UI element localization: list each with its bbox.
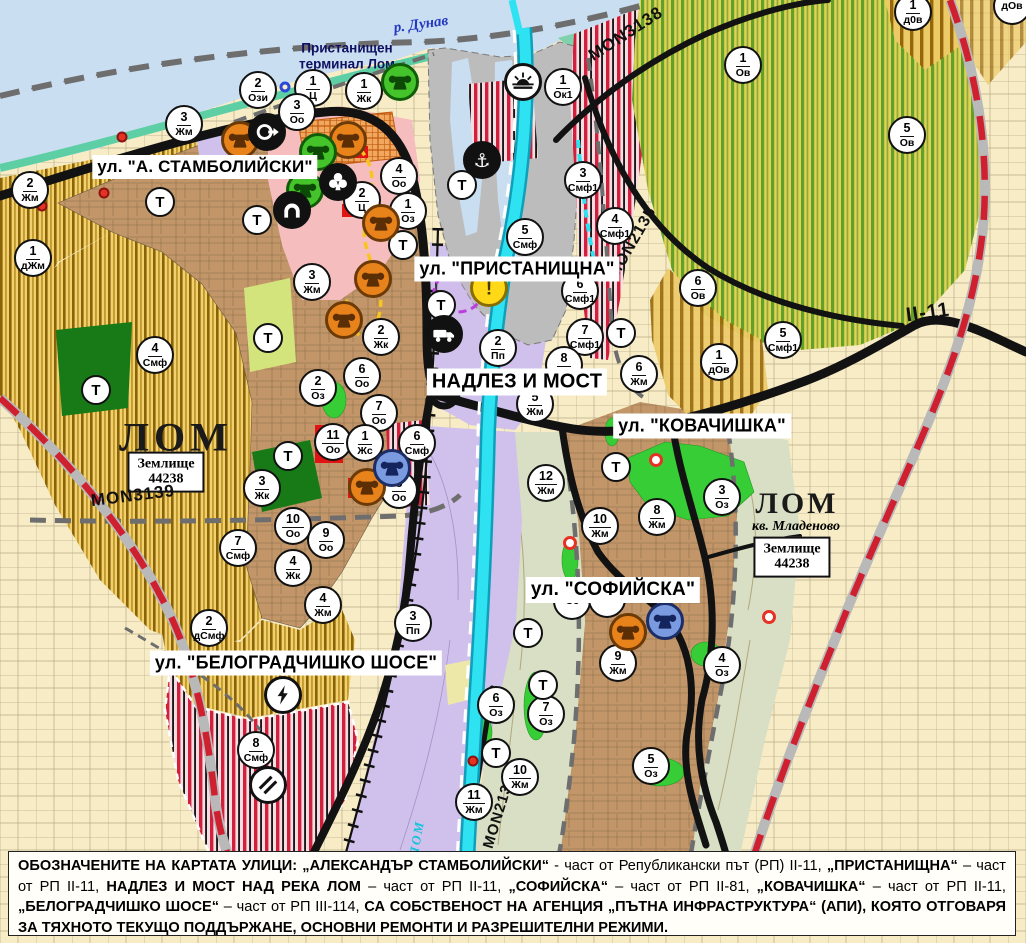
- zone-marker-3-Жм: 3Жм: [293, 263, 331, 301]
- monument-blue-icon: [373, 449, 411, 487]
- pump-station-icon: [248, 113, 286, 151]
- zone-marker-7-Оз: 7Оз: [527, 695, 565, 733]
- monument-green-icon: [381, 63, 419, 101]
- truck-icon: [425, 315, 463, 353]
- tunnel-icon: [273, 191, 311, 229]
- zone-marker-5-Смф: 5Смф: [506, 218, 544, 256]
- zone-marker-1-д0в: 1д0в: [894, 0, 932, 31]
- zone-marker-6-Ов: 6Ов: [679, 269, 717, 307]
- zone-marker-10-Жм: 10Жм: [501, 758, 539, 796]
- river-danube-label: р. Дунав: [393, 13, 450, 37]
- poi-red-dot: [99, 188, 110, 199]
- zone-marker-4-Оо: 4Оо: [380, 157, 418, 195]
- zone-marker-9-Оо: 9Оо: [307, 521, 345, 559]
- zone-marker-4-Жк: 4Жк: [274, 549, 312, 587]
- map-overlay: р. Дунав Пристанищен терминал Лом ЛОМ ЛО…: [0, 0, 1026, 943]
- svg-text:⚓: ⚓: [474, 150, 491, 172]
- zone-marker-4-Смф: 4Смф: [136, 336, 174, 374]
- zone-marker-1-Жк: 1Жк: [345, 72, 383, 110]
- map-caption: ОБОЗНАЧЕНИТЕ НА КАРТАТА УЛИЦИ: „АЛЕКСАНД…: [8, 851, 1016, 936]
- zone-marker-7-Смф: 7Смф: [219, 529, 257, 567]
- terrain-marker-t: Т: [273, 441, 303, 471]
- zone-marker-3-Пп: 3Пп: [394, 604, 432, 642]
- zone-marker-2-Жм: 2Жм: [11, 171, 49, 209]
- zone-marker-2-Жк: 2Жк: [362, 318, 400, 356]
- lighthouse-icon: [504, 63, 542, 101]
- zone-marker-5-Смф1: 5Смф1: [764, 321, 802, 359]
- zoning-map: р. Дунав Пристанищен терминал Лом ЛОМ ЛО…: [0, 0, 1026, 943]
- terrain-marker-t: Т: [601, 452, 631, 482]
- terrain-marker-t: Т: [481, 738, 511, 768]
- zone-marker-5-Ов: 5Ов: [888, 116, 926, 154]
- road-label-ii-11: II-11: [905, 299, 952, 328]
- terrain-marker-t: Т: [145, 187, 175, 217]
- zone-marker-6-Жм: 6Жм: [620, 355, 658, 393]
- road-label-mon3138: MON3138: [585, 3, 667, 66]
- terrain-marker-t: Т: [606, 318, 636, 348]
- zone-marker-1-дЖм: 1дЖм: [14, 239, 52, 277]
- zone-marker-8-Смф: 8Смф: [237, 731, 275, 769]
- street-label-nadlez-i-most: НАДЛЕЗ И МОСТ: [427, 369, 607, 396]
- zone-marker-2-Ози: 2Ози: [239, 71, 277, 109]
- zone-marker-11-Жм: 11Жм: [455, 783, 493, 821]
- monument-orange-icon: [325, 301, 363, 339]
- zone-marker-2-дСмф: 2дСмф: [190, 609, 228, 647]
- terrain-marker-t: Т: [81, 375, 111, 405]
- zone-marker-1-Ок1: 1Ок1: [544, 68, 582, 106]
- terrain-marker-t: Т: [242, 205, 272, 235]
- rail-crossing-icon: [249, 766, 287, 804]
- zone-marker-5-Оз: 5Оз: [632, 747, 670, 785]
- svg-text:!: !: [486, 279, 492, 300]
- zone-marker-3-Жк: 3Жк: [243, 469, 281, 507]
- city-label-lom-right: ЛОМ: [755, 487, 838, 521]
- zone-marker-4-Оз: 4Оз: [703, 646, 741, 684]
- poi-red-ring: [563, 536, 577, 550]
- street-label-kovachishka: ул. "КОВАЧИШКА": [613, 414, 791, 439]
- street-label-sofiyska: ул. "СОФИЙСКА": [526, 577, 700, 603]
- zone-marker-10-Жм: 10Жм: [581, 507, 619, 545]
- road-label-mon3139: MON3139: [90, 481, 176, 511]
- poi-red-dot: [117, 132, 128, 143]
- street-label-pristanishtna: ул. "ПРИСТАНИЩНА": [414, 257, 619, 282]
- zone-marker-3-Жм: 3Жм: [165, 105, 203, 143]
- street-label-belogradchishko-shose: ул. "БЕЛОГРАДЧИШКО ШОСЕ": [150, 651, 442, 676]
- zone-marker-2-Оз: 2Оз: [299, 369, 337, 407]
- poi-red-dot: [468, 756, 479, 767]
- zone-marker-3-Оз: 3Оз: [703, 478, 741, 516]
- port-terminal-label: Пристанищен терминал Лом: [299, 40, 395, 71]
- club-icon: [319, 163, 357, 201]
- zone-marker-4-Жм: 4Жм: [304, 586, 342, 624]
- poi-red-ring: [649, 453, 663, 467]
- zone-marker-12-Жм: 12Жм: [527, 464, 565, 502]
- monument-blue-icon: [646, 602, 684, 640]
- poi-blue-ring: [280, 82, 291, 93]
- zone-marker-8-Жм: 8Жм: [638, 498, 676, 536]
- terrain-marker-t: Т: [513, 618, 543, 648]
- monument-orange-icon: [362, 204, 400, 242]
- zone-marker-6-Оо: 6Оо: [343, 357, 381, 395]
- landplot-box-right: Землище 44238: [753, 537, 830, 578]
- zone-marker-1-Ов: 1Ов: [724, 46, 762, 84]
- zone-marker-2-Пп: 2Пп: [479, 329, 517, 367]
- zone-marker-дОв: дОв: [993, 0, 1026, 25]
- street-label-stamboliyski: ул. "А. СТАМБОЛИЙСКИ": [92, 155, 317, 179]
- terrain-marker-t: Т: [253, 323, 283, 353]
- zone-marker-3-Смф1: 3Смф1: [564, 161, 602, 199]
- district-label: кв. Младеново: [752, 519, 840, 535]
- terrain-marker-t: Т: [528, 670, 558, 700]
- anchor-icon: ⚓: [463, 141, 501, 179]
- monument-orange-icon: [354, 260, 392, 298]
- power-icon: [264, 676, 302, 714]
- zone-marker-1-дОв: 1дОв: [700, 343, 738, 381]
- monument-orange-icon: [609, 613, 647, 651]
- zone-marker-6-Оз: 6Оз: [477, 686, 515, 724]
- poi-red-ring: [762, 610, 776, 624]
- zone-marker-4-Смф1: 4Смф1: [596, 207, 634, 245]
